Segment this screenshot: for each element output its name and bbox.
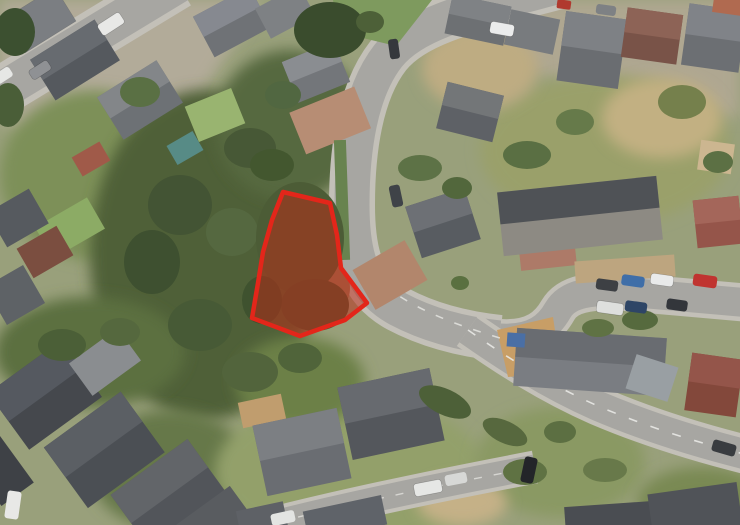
tree-large xyxy=(294,2,366,58)
tree xyxy=(582,319,614,337)
tree xyxy=(442,177,472,199)
blue-tarp xyxy=(507,332,526,347)
tree xyxy=(124,230,180,294)
tree xyxy=(250,149,294,181)
tree xyxy=(544,421,576,443)
bush-bend-corner xyxy=(451,276,469,290)
tree xyxy=(38,329,86,361)
tree xyxy=(278,343,322,373)
hedge xyxy=(583,458,627,482)
tree xyxy=(556,109,594,135)
tree xyxy=(503,141,551,169)
tree xyxy=(356,11,384,33)
tree xyxy=(265,81,301,109)
tree xyxy=(206,208,258,256)
tree xyxy=(222,352,278,392)
tree xyxy=(398,155,442,181)
aerial-photo-canvas xyxy=(0,0,740,525)
tree xyxy=(148,175,212,235)
map-generated-layers xyxy=(0,0,740,525)
tree xyxy=(703,151,733,173)
satellite-map-image[interactable] xyxy=(0,0,740,525)
roof-slope xyxy=(693,196,740,225)
tree xyxy=(168,299,232,351)
tree xyxy=(120,77,160,107)
tree xyxy=(658,85,706,119)
tree xyxy=(100,318,140,346)
